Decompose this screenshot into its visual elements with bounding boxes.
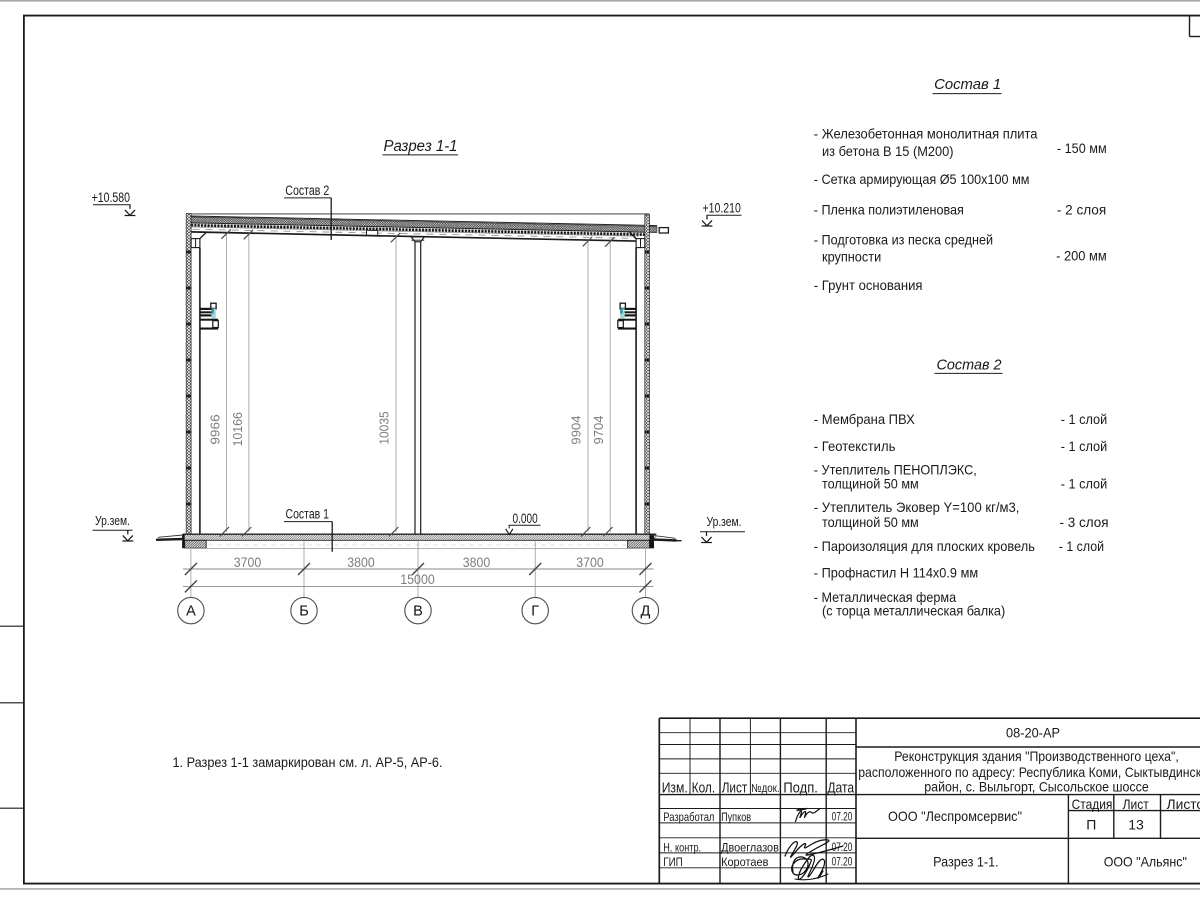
svg-text:Лист: Лист bbox=[722, 780, 748, 797]
svg-text:9966: 9966 bbox=[207, 414, 222, 444]
svg-text:08-20-АР: 08-20-АР bbox=[1006, 725, 1060, 741]
svg-text:- 1 слой: - 1 слой bbox=[1059, 538, 1104, 554]
svg-text:Ур.зем.: Ур.зем. bbox=[95, 513, 130, 528]
svg-text:Состав 1: Состав 1 bbox=[286, 506, 330, 521]
svg-text:- 1 слой: - 1 слой bbox=[1061, 411, 1107, 427]
svg-text:9704: 9704 bbox=[591, 415, 606, 444]
svg-text:из бетона В 15 (М200): из бетона В 15 (М200) bbox=[822, 143, 954, 159]
svg-text:10035: 10035 bbox=[376, 411, 391, 444]
svg-text:15000: 15000 bbox=[400, 572, 435, 587]
svg-text:0.000: 0.000 bbox=[513, 511, 538, 526]
svg-text:- Пароизоляция для плоских кро: - Пароизоляция для плоских кровель bbox=[814, 538, 1035, 554]
svg-text:+10.580: +10.580 bbox=[92, 190, 130, 205]
svg-text:Состав 2: Состав 2 bbox=[937, 357, 1002, 373]
svg-text:3700: 3700 bbox=[234, 555, 262, 570]
svg-text:- 150 мм: - 150 мм bbox=[1057, 140, 1107, 156]
svg-text:- Профнастил Н 114х0.9 мм: - Профнастил Н 114х0.9 мм bbox=[814, 564, 978, 580]
svg-text:Состав 1: Состав 1 bbox=[934, 77, 1001, 93]
svg-text:Дата: Дата bbox=[827, 780, 854, 797]
svg-text:- 200 мм: - 200 мм bbox=[1056, 248, 1107, 264]
svg-text:Разрез 1-1: Разрез 1-1 bbox=[384, 138, 458, 155]
svg-text:Стадия: Стадия bbox=[1072, 796, 1113, 812]
svg-text:- 2 слоя: - 2 слоя bbox=[1057, 202, 1106, 218]
svg-text:9904: 9904 bbox=[569, 415, 584, 444]
svg-text:3700: 3700 bbox=[576, 555, 604, 570]
svg-text:Д: Д bbox=[640, 604, 650, 620]
svg-text:- Утеплитель Эковер Y=100 кг/м: - Утеплитель Эковер Y=100 кг/м3, bbox=[814, 499, 1020, 515]
svg-text:10166: 10166 bbox=[230, 412, 245, 447]
svg-text:1. Разрез 1-1 замаркирован см.: 1. Разрез 1-1 замаркирован см. л. АР-5, … bbox=[173, 754, 443, 770]
svg-text:07.20: 07.20 bbox=[832, 857, 853, 869]
svg-text:А: А bbox=[186, 604, 196, 620]
svg-text:- Геотекстиль: - Геотекстиль bbox=[814, 438, 896, 454]
svg-text:- Железобетонная монолитная п: - Железобетонная монолитная плита bbox=[814, 126, 1038, 142]
svg-text:ООО "Леспромсервис": ООО "Леспромсервис" bbox=[888, 808, 1022, 824]
svg-text:Подп.: Подп. bbox=[783, 780, 818, 797]
svg-text:Коротаев: Коротаев bbox=[721, 855, 768, 869]
svg-text:№док.: №док. bbox=[751, 783, 780, 795]
svg-text:ООО "Альянс": ООО "Альянс" bbox=[1104, 853, 1187, 869]
svg-text:Ур.зем.: Ур.зем. bbox=[707, 514, 742, 529]
svg-text:район, с. Выльгорт, Сысольское: район, с. Выльгорт, Сысольское шоссе bbox=[924, 779, 1149, 795]
svg-text:крупности: крупности bbox=[822, 249, 881, 265]
svg-text:07.20: 07.20 bbox=[832, 812, 853, 824]
svg-text:Состав 2: Состав 2 bbox=[285, 183, 329, 198]
svg-text:- 1 слой: - 1 слой bbox=[1061, 476, 1107, 492]
svg-text:Пупков: Пупков bbox=[721, 810, 751, 824]
svg-text:толщиной 50 мм: толщиной 50 мм bbox=[822, 476, 919, 492]
svg-text:Разработал: Разработал bbox=[663, 810, 714, 824]
svg-text:- Грунт основания: - Грунт основания bbox=[814, 277, 923, 293]
svg-text:Листов: Листов bbox=[1167, 796, 1200, 812]
svg-text:- 1 слой: - 1 слой bbox=[1061, 438, 1107, 454]
svg-text:(с торца металлическая балка): (с торца металлическая балка) bbox=[822, 602, 1005, 618]
svg-text:- Подготовка из песка средней: - Подготовка из песка средней bbox=[814, 231, 993, 247]
svg-text:- Пленка полиэтиленовая: - Пленка полиэтиленовая bbox=[814, 202, 964, 218]
svg-text:- Мембрана ПВХ: - Мембрана ПВХ bbox=[814, 411, 916, 427]
svg-text:толщиной 50 мм: толщиной 50 мм bbox=[822, 514, 919, 530]
svg-text:Б: Б bbox=[299, 604, 309, 620]
svg-text:П: П bbox=[1086, 817, 1096, 833]
svg-text:Разрез 1-1.: Разрез 1-1. bbox=[933, 853, 999, 869]
svg-text:+10.210: +10.210 bbox=[703, 201, 741, 216]
svg-text:В: В bbox=[413, 604, 423, 620]
svg-text:Изм.: Изм. bbox=[662, 780, 688, 797]
svg-text:Н. контр.: Н. контр. bbox=[663, 840, 701, 854]
svg-text:- 3 слоя: - 3 слоя bbox=[1060, 514, 1109, 530]
svg-text:Двоеглазов: Двоеглазов bbox=[721, 840, 779, 854]
svg-text:Г: Г bbox=[531, 604, 539, 620]
svg-text:Реконструкция здания "Производ: Реконструкция здания "Производственного … bbox=[894, 748, 1179, 764]
svg-text:3800: 3800 bbox=[463, 555, 491, 570]
svg-text:- Сетка армирующая Ø5 100x100: - Сетка армирующая Ø5 100x100 мм bbox=[814, 171, 1030, 187]
svg-text:Лист: Лист bbox=[1123, 796, 1150, 812]
svg-text:13: 13 bbox=[1128, 817, 1144, 833]
svg-text:3800: 3800 bbox=[347, 555, 375, 570]
svg-text:Кол.: Кол. bbox=[692, 780, 716, 797]
svg-text:ГИП: ГИП bbox=[663, 855, 682, 869]
